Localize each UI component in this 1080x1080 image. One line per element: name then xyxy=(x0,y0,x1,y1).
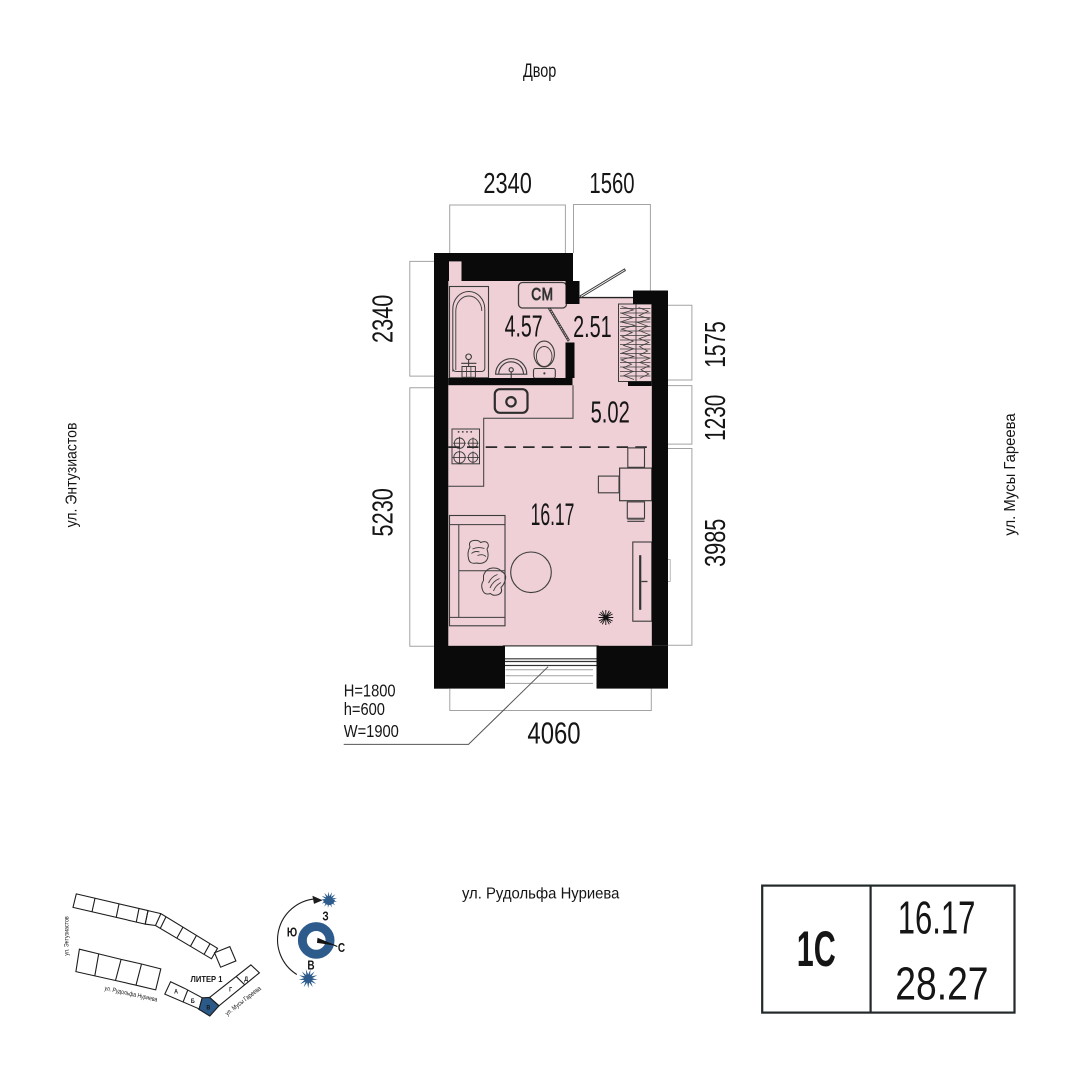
svg-text:ЛИТЕР 1: ЛИТЕР 1 xyxy=(191,975,224,984)
svg-text:3985: 3985 xyxy=(700,519,732,567)
svg-text:4.57: 4.57 xyxy=(505,310,543,343)
svg-text:2.51: 2.51 xyxy=(573,311,612,344)
svg-text:Б: Б xyxy=(191,999,195,1005)
svg-text:2340: 2340 xyxy=(483,168,531,200)
svg-text:16.17: 16.17 xyxy=(531,498,575,533)
svg-text:ул. Мусы Гареева: ул. Мусы Гареева xyxy=(1002,413,1020,536)
svg-text:ул. Энтузиастов: ул. Энтузиастов xyxy=(64,916,71,955)
svg-text:З: З xyxy=(322,911,328,924)
svg-text:Г: Г xyxy=(229,987,233,993)
svg-text:Ю: Ю xyxy=(287,926,298,939)
svg-text:5230: 5230 xyxy=(368,488,400,536)
svg-text:28.27: 28.27 xyxy=(895,958,988,1010)
svg-text:А: А xyxy=(174,989,179,995)
svg-text:СМ: СМ xyxy=(531,286,554,305)
svg-text:1С: 1С xyxy=(797,921,836,977)
svg-text:ул. Рудольфа Нуриева: ул. Рудольфа Нуриева xyxy=(462,885,620,902)
svg-text:W=1900: W=1900 xyxy=(344,722,399,741)
svg-text:1575: 1575 xyxy=(700,321,732,367)
svg-text:4060: 4060 xyxy=(527,716,580,750)
svg-text:1230: 1230 xyxy=(700,395,732,441)
svg-text:С: С xyxy=(338,942,345,955)
svg-text:16.17: 16.17 xyxy=(898,892,976,944)
svg-text:В: В xyxy=(307,959,314,972)
svg-text:ул. Энтузиастов: ул. Энтузиастов xyxy=(63,423,81,528)
svg-text:5.02: 5.02 xyxy=(591,397,630,430)
svg-text:1560: 1560 xyxy=(589,167,634,199)
svg-text:2340: 2340 xyxy=(368,295,400,343)
svg-text:H=1800: H=1800 xyxy=(344,681,396,700)
svg-text:В: В xyxy=(206,1005,210,1011)
svg-text:Двор: Двор xyxy=(523,60,556,81)
svg-text:h=600: h=600 xyxy=(344,700,385,719)
